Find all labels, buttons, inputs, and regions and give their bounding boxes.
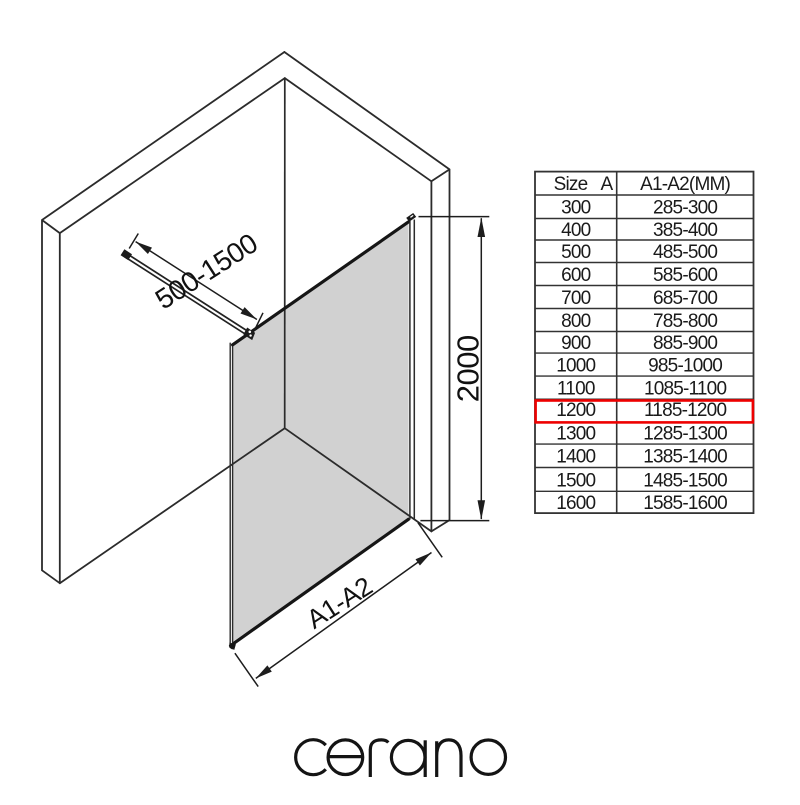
svg-text:1385-1400: 1385-1400 [643, 447, 727, 468]
svg-text:1500: 1500 [556, 470, 595, 491]
svg-text:500: 500 [561, 242, 591, 263]
svg-text:585-600: 585-600 [653, 265, 717, 286]
svg-text:985-1000: 985-1000 [648, 356, 722, 377]
svg-text:1100: 1100 [557, 379, 595, 400]
svg-text:Size: Size [554, 174, 588, 195]
svg-text:685-700: 685-700 [653, 288, 717, 309]
svg-text:1585-1600: 1585-1600 [643, 493, 727, 514]
svg-text:1200: 1200 [556, 400, 595, 421]
svg-text:700: 700 [561, 288, 591, 309]
svg-text:400: 400 [561, 220, 591, 241]
svg-text:385-400: 385-400 [653, 220, 717, 241]
svg-text:885-900: 885-900 [653, 333, 717, 354]
svg-text:485-500: 485-500 [653, 242, 717, 263]
svg-text:2000: 2000 [450, 335, 485, 402]
svg-text:600: 600 [561, 265, 591, 286]
svg-text:785-800: 785-800 [653, 311, 717, 332]
svg-text:1185-1200: 1185-1200 [644, 400, 726, 421]
svg-text:800: 800 [561, 311, 591, 332]
svg-text:1300: 1300 [556, 424, 595, 445]
svg-text:A: A [600, 174, 613, 195]
svg-text:1000: 1000 [556, 356, 595, 377]
svg-text:1600: 1600 [556, 493, 595, 514]
svg-text:1085-1100: 1085-1100 [644, 379, 726, 400]
svg-text:A1-A2(MM): A1-A2(MM) [640, 174, 730, 195]
svg-text:300: 300 [561, 198, 591, 219]
svg-text:1485-1500: 1485-1500 [643, 470, 727, 491]
svg-text:900: 900 [561, 333, 591, 354]
svg-text:285-300: 285-300 [653, 198, 717, 219]
svg-text:1400: 1400 [556, 447, 595, 468]
svg-text:1285-1300: 1285-1300 [643, 424, 727, 445]
